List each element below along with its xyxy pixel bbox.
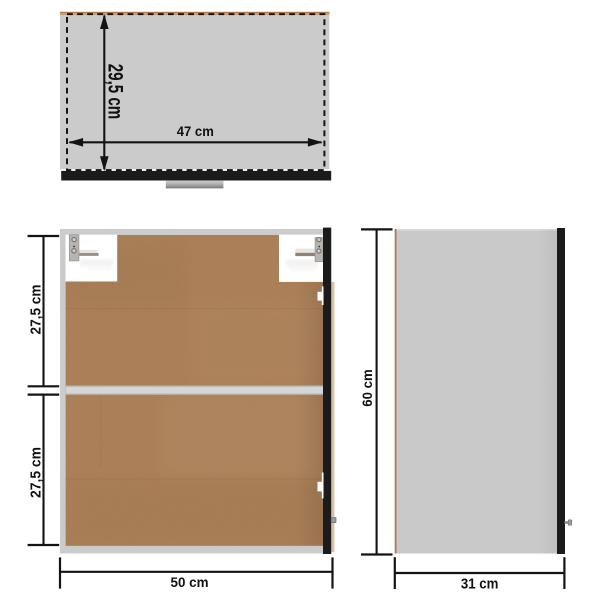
- svg-text:60 cm: 60 cm: [359, 369, 375, 407]
- svg-text:27,5 cm: 27,5 cm: [28, 447, 44, 498]
- svg-text:27,5 cm: 27,5 cm: [28, 285, 44, 335]
- svg-text:31 cm: 31 cm: [461, 576, 499, 593]
- svg-text:29,5 cm: 29,5 cm: [104, 64, 127, 120]
- svg-text:50 cm: 50 cm: [171, 575, 209, 590]
- svg-text:47 cm: 47 cm: [177, 124, 214, 139]
